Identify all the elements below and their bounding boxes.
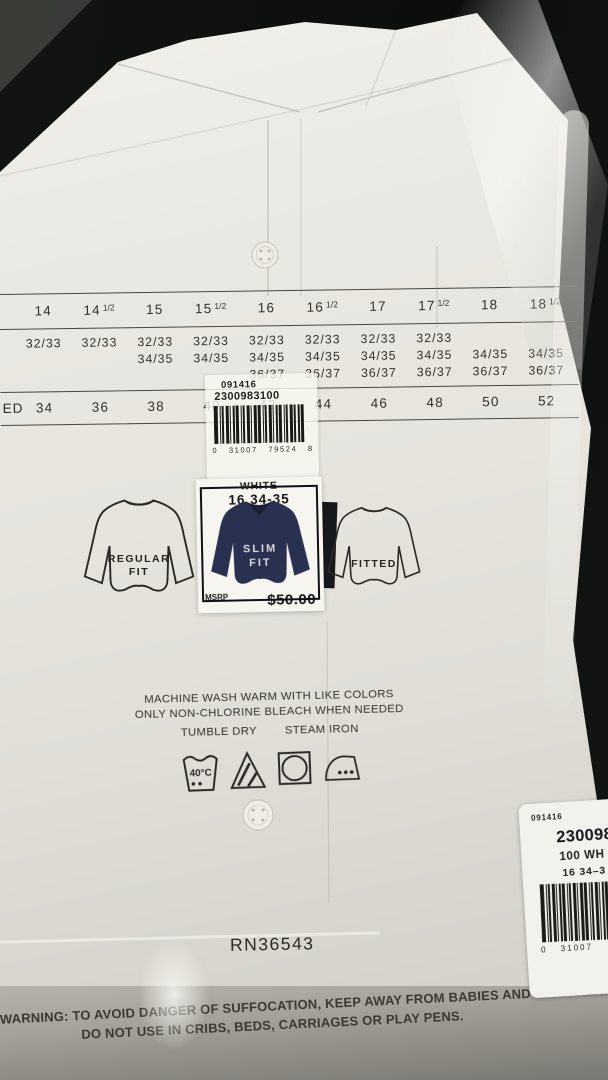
svg-text:40°C: 40°C bbox=[189, 768, 211, 780]
neck-size: 171/2 bbox=[406, 298, 462, 314]
neck-size: 17 bbox=[350, 298, 406, 314]
regular-fit-icon: REGULARFIT bbox=[82, 492, 196, 602]
side-style-code: 091416 bbox=[531, 806, 608, 823]
label-msrp: MSRP bbox=[205, 593, 228, 602]
care-tumble-dry: TUMBLE DRY bbox=[181, 725, 257, 739]
side-barcode-sticker: 091416 2300983 100 WH 16 34–3 0 31007 bbox=[518, 796, 608, 999]
neck-size: 161/2 bbox=[294, 299, 350, 315]
chest-size: 52 bbox=[519, 393, 575, 409]
neck-size: 16 bbox=[238, 300, 294, 316]
sleeve-options: 32/33 bbox=[71, 334, 128, 386]
bag-bottom: WARNING: TO AVOID DANGER OF SUFFOCATION,… bbox=[0, 986, 608, 1080]
sleeve-options: 32/33 bbox=[16, 335, 73, 387]
chest-size: 36 bbox=[72, 399, 128, 415]
chest-size: 38 bbox=[128, 398, 184, 414]
fitted-icon: FITTED bbox=[326, 494, 422, 600]
sleeve-options: 32/3334/3536/37 bbox=[406, 330, 463, 382]
sleeve-options: 32/3334/35 bbox=[127, 333, 184, 385]
side-upc-barcode bbox=[540, 879, 608, 943]
photo-packaged-dress-shirt: 14141/215151/216161/217171/218181/2 32/3… bbox=[0, 0, 608, 1080]
price-barcode-sticker: 091416 2300983100 0 31007 79524 8 bbox=[205, 373, 319, 481]
tumble-dry-icon bbox=[274, 745, 314, 790]
sleeve-options: 34/3536/37 bbox=[518, 328, 575, 380]
chest-row-label: ED bbox=[3, 401, 24, 416]
neck-size: 141/2 bbox=[71, 302, 127, 318]
sleeve-options: 32/3334/3536/37 bbox=[350, 330, 407, 382]
neck-size: 181/2 bbox=[517, 296, 573, 312]
regular-fit-caption: REGULARFIT bbox=[82, 553, 196, 579]
machine-wash-40c-icon: 40°C bbox=[180, 749, 220, 794]
chest-size: 48 bbox=[407, 395, 463, 411]
suffocation-warning: WARNING: TO AVOID DANGER OF SUFFOCATION,… bbox=[0, 982, 608, 1046]
upc-barcode bbox=[214, 404, 307, 444]
chest-size: 46 bbox=[351, 395, 407, 411]
care-steam-iron: STEAM IRON bbox=[285, 723, 359, 737]
neck-size: 18 bbox=[462, 297, 518, 313]
sticker-sku: 2300983100 bbox=[214, 389, 317, 403]
non-chlorine-bleach-icon bbox=[227, 747, 267, 792]
neck-size: 15 bbox=[127, 301, 183, 317]
neck-size: 151/2 bbox=[183, 301, 239, 317]
side-color-code: 100 WH bbox=[559, 845, 608, 864]
sleeve-options: 34/3536/37 bbox=[462, 329, 519, 381]
care-instructions: MACHINE WASH WARM WITH LIKE COLORS ONLY … bbox=[0, 681, 575, 803]
fitted-caption: FITTED bbox=[326, 558, 422, 571]
plastic-glare bbox=[138, 938, 210, 1050]
side-size: 16 34–3 bbox=[562, 861, 608, 880]
chest-size: 50 bbox=[463, 394, 519, 410]
label-fit-text: SLIMFIT bbox=[197, 541, 324, 572]
steam-iron-icon bbox=[321, 744, 361, 789]
side-sku: 2300983 bbox=[556, 822, 608, 848]
label-price: $50.00 bbox=[267, 591, 316, 609]
upc-digits: 0 31007 79524 8 bbox=[212, 444, 318, 455]
neck-size: 14 bbox=[15, 303, 71, 319]
slim-fit-label-sticker: WHITE 16 34-35 SLIMFIT MSRP $50.00 bbox=[196, 477, 325, 614]
chest-size: 34 bbox=[17, 400, 73, 416]
care-symbols: 40°C bbox=[180, 744, 360, 795]
